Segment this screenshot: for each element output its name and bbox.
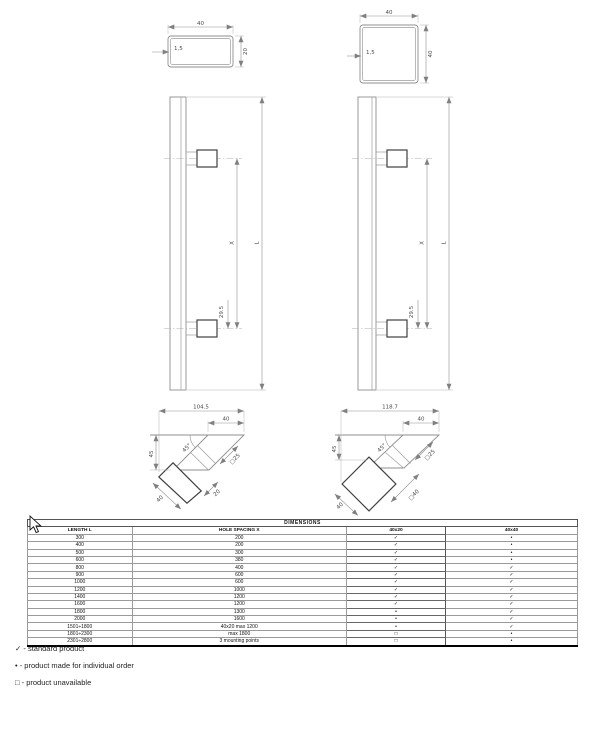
dim-label-rect-width: 40: [197, 21, 204, 27]
table-row: 1501÷180040x20 max 1200•✓: [28, 623, 578, 630]
dim-label-offset: 29.5: [219, 305, 225, 318]
table-title: DIMENSIONS: [28, 520, 578, 527]
dim-label-support: □25: [229, 453, 242, 466]
dim-label-square-height: 40: [428, 50, 434, 57]
spacing-cell: max 1800: [132, 630, 347, 637]
table-row: 800400✓✓: [28, 564, 578, 571]
cell-40x20: ✓: [347, 564, 446, 571]
cell-40x40: •: [446, 556, 578, 563]
table-row: 400200✓•: [28, 542, 578, 549]
cell-40x20: ✓: [347, 579, 446, 586]
spacing-cell: 400: [132, 564, 347, 571]
spacing-cell: 200: [132, 534, 347, 541]
length-cell: 500: [28, 549, 133, 556]
cell-40x20: ✓: [347, 593, 446, 600]
post-sleeve-top: [387, 150, 407, 167]
mouse-cursor-icon: [29, 515, 43, 534]
spacing-cell: 1300: [132, 608, 347, 615]
table-row: 12001000✓✓: [28, 586, 578, 593]
cell-40x20: •: [347, 608, 446, 615]
header-spacing: HOLE SPACING X: [132, 527, 347, 534]
table-row: 600380✓•: [28, 556, 578, 563]
dim-label-length-l: L: [255, 241, 261, 245]
rect-tube-section-drawing: 40 20 1,5: [150, 15, 260, 77]
cell-40x40: ✓: [446, 571, 578, 578]
length-cell: 1501÷1800: [28, 623, 133, 630]
spacing-cell: 1200: [132, 601, 347, 608]
cell-40x20: ✓: [347, 571, 446, 578]
cell-40x40: ✓: [446, 564, 578, 571]
spacing-cell: 600: [132, 571, 347, 578]
cell-40x40: •: [446, 534, 578, 541]
legend-individual-order: • - product made for individual order: [15, 661, 134, 670]
header-length: LENGTH L: [28, 527, 133, 534]
spacing-cell: 300: [132, 549, 347, 556]
cell-40x40: •: [446, 638, 578, 646]
handle-bar: [358, 97, 376, 390]
table-row: 1000600✓✓: [28, 579, 578, 586]
post-sleeve-bottom: [197, 320, 217, 337]
spacing-cell: 1200: [132, 593, 347, 600]
angled-view-left-drawing: 104.5 40 45 45° □25 20 40: [140, 396, 270, 518]
table-row: 300200✓•: [28, 534, 578, 541]
cell-40x20: ✓: [347, 549, 446, 556]
length-cell: 1800: [28, 608, 133, 615]
length-cell: 1000: [28, 579, 133, 586]
header-40x20: 40x20: [347, 527, 446, 534]
cell-40x20: •: [347, 616, 446, 623]
table-row: 2301÷28003 mounting points□•: [28, 638, 578, 646]
cell-40x20: ✓: [347, 534, 446, 541]
legend-unavailable: □ - product unavailable: [15, 678, 91, 687]
cell-40x20: □: [347, 630, 446, 637]
post-sleeve-bottom: [387, 320, 407, 337]
cell-40x40: ✓: [446, 601, 578, 608]
dim-label-height: 45: [332, 445, 338, 452]
dim-label-length-l: L: [442, 241, 448, 245]
spacing-cell: 380: [132, 556, 347, 563]
dim-label-overall: 118.7: [382, 405, 398, 411]
dim-label-grip-depth: 20: [213, 488, 223, 498]
cell-40x20: ✓: [347, 556, 446, 563]
table-row: 14001200✓✓: [28, 593, 578, 600]
dim-label-grip-width: 40: [156, 494, 166, 504]
spacing-cell: 3 mounting points: [132, 638, 347, 646]
cell-40x40: ✓: [446, 623, 578, 630]
length-cell: 1600: [28, 601, 133, 608]
cell-40x40: ✓: [446, 579, 578, 586]
angled-view-right-drawing: 118.7 40 45 45° □40 □25 40: [325, 396, 465, 520]
dim-label-top-width: 40: [418, 417, 425, 423]
dim-label-support: □25: [424, 449, 437, 462]
cell-40x20: ✓: [347, 542, 446, 549]
elevation-right-drawing: X L 29.5: [348, 90, 463, 398]
table-row: 18001300•✓: [28, 608, 578, 615]
table-header-row: LENGTH L HOLE SPACING X 40x20 40x40: [28, 527, 578, 534]
cell-40x40: •: [446, 542, 578, 549]
handle-bar: [170, 97, 186, 390]
length-cell: 300: [28, 534, 133, 541]
elevation-left-drawing: X L 29.5: [160, 90, 275, 398]
technical-drawing-page: 40 20 1,5 40 40 1,5 X L 29.5: [0, 0, 600, 746]
dim-label-square-wall: 1,5: [366, 50, 375, 56]
length-cell: 800: [28, 564, 133, 571]
length-cell: 600: [28, 556, 133, 563]
table-row: 20001600•✓: [28, 616, 578, 623]
cell-40x40: ✓: [446, 608, 578, 615]
cell-40x40: ✓: [446, 593, 578, 600]
length-cell: 1801÷2300: [28, 630, 133, 637]
legend-standard-product: ✓ - standard product: [15, 644, 84, 653]
cell-40x40: •: [446, 630, 578, 637]
dim-label-height: 45: [149, 450, 155, 457]
cell-40x20: •: [347, 623, 446, 630]
dim-label-square-width: 40: [386, 10, 393, 16]
dim-label-top-width: 40: [223, 417, 230, 423]
dim-label-rect-wall: 1,5: [174, 46, 183, 52]
length-cell: 900: [28, 571, 133, 578]
table-row: 900600✓✓: [28, 571, 578, 578]
dim-label-grip: □40: [408, 489, 421, 502]
spacing-cell: 1000: [132, 586, 347, 593]
cell-40x40: ✓: [446, 586, 578, 593]
length-cell: 400: [28, 542, 133, 549]
dim-label-grip-width: 40: [336, 501, 346, 511]
length-cell: 2000: [28, 616, 133, 623]
cell-40x20: ✓: [347, 586, 446, 593]
spacing-cell: 600: [132, 579, 347, 586]
table-row: 500300✓•: [28, 549, 578, 556]
square-tube-section-drawing: 40 40 1,5: [345, 8, 460, 92]
post-sleeve-top: [197, 150, 217, 167]
dim-label-offset: 29.5: [409, 305, 415, 318]
table-row: 1801÷2300max 1800□•: [28, 630, 578, 637]
table-title-row: DIMENSIONS: [28, 520, 578, 527]
cell-40x40: ✓: [446, 616, 578, 623]
cell-40x40: •: [446, 549, 578, 556]
dim-label-rect-height: 20: [243, 48, 249, 55]
spacing-cell: 1600: [132, 616, 347, 623]
table-row: 16001200✓✓: [28, 601, 578, 608]
header-40x40: 40x40: [446, 527, 578, 534]
length-cell: 1400: [28, 593, 133, 600]
cell-40x20: □: [347, 638, 446, 646]
dim-label-overall: 104.5: [193, 405, 209, 411]
dim-label-spacing-x: X: [230, 241, 236, 245]
dimensions-table: DIMENSIONS LENGTH L HOLE SPACING X 40x20…: [27, 519, 578, 647]
length-cell: 1200: [28, 586, 133, 593]
cell-40x20: ✓: [347, 601, 446, 608]
dim-label-spacing-x: X: [420, 241, 426, 245]
spacing-cell: 40x20 max 1200: [132, 623, 347, 630]
spacing-cell: 200: [132, 542, 347, 549]
